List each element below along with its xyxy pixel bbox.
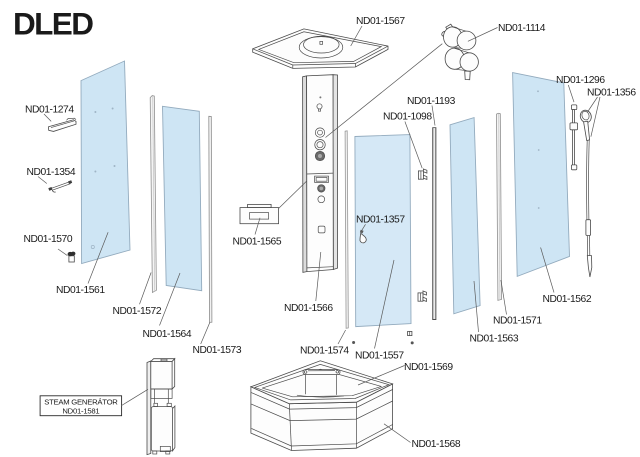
svg-text:ND01-1356: ND01-1356 — [587, 88, 636, 99]
svg-text:ND01-1193: ND01-1193 — [407, 96, 456, 107]
svg-text:ND01-1581: ND01-1581 — [62, 407, 99, 416]
svg-text:ND01-1568: ND01-1568 — [412, 439, 461, 450]
svg-text:ND01-1562: ND01-1562 — [543, 294, 592, 305]
svg-text:ND01-1567: ND01-1567 — [356, 16, 405, 27]
svg-text:ND01-1296: ND01-1296 — [556, 75, 605, 86]
svg-text:ND01-1357: ND01-1357 — [356, 215, 405, 226]
svg-text:ND01-1573: ND01-1573 — [193, 345, 242, 356]
svg-text:STEAM GENERÁTOR: STEAM GENERÁTOR — [44, 397, 118, 406]
svg-text:ND01-1572: ND01-1572 — [113, 306, 162, 317]
svg-text:ND01-1098: ND01-1098 — [383, 112, 432, 123]
svg-text:ND01-1566: ND01-1566 — [284, 303, 333, 314]
svg-text:ND01-1561: ND01-1561 — [56, 285, 105, 296]
svg-text:ND01-1571: ND01-1571 — [493, 316, 542, 327]
svg-text:ND01-1574: ND01-1574 — [300, 346, 349, 357]
svg-text:ND01-1570: ND01-1570 — [24, 234, 73, 245]
svg-text:ND01-1354: ND01-1354 — [27, 167, 76, 178]
svg-text:ND01-1563: ND01-1563 — [470, 334, 519, 345]
svg-text:ND01-1274: ND01-1274 — [25, 105, 74, 116]
svg-text:DLED: DLED — [13, 6, 93, 42]
svg-text:ND01-1565: ND01-1565 — [233, 237, 282, 248]
svg-text:ND01-1557: ND01-1557 — [355, 351, 404, 362]
svg-text:ND01-1564: ND01-1564 — [143, 329, 192, 340]
svg-text:ND01-1114: ND01-1114 — [498, 23, 546, 34]
svg-text:ND01-1569: ND01-1569 — [404, 362, 453, 373]
